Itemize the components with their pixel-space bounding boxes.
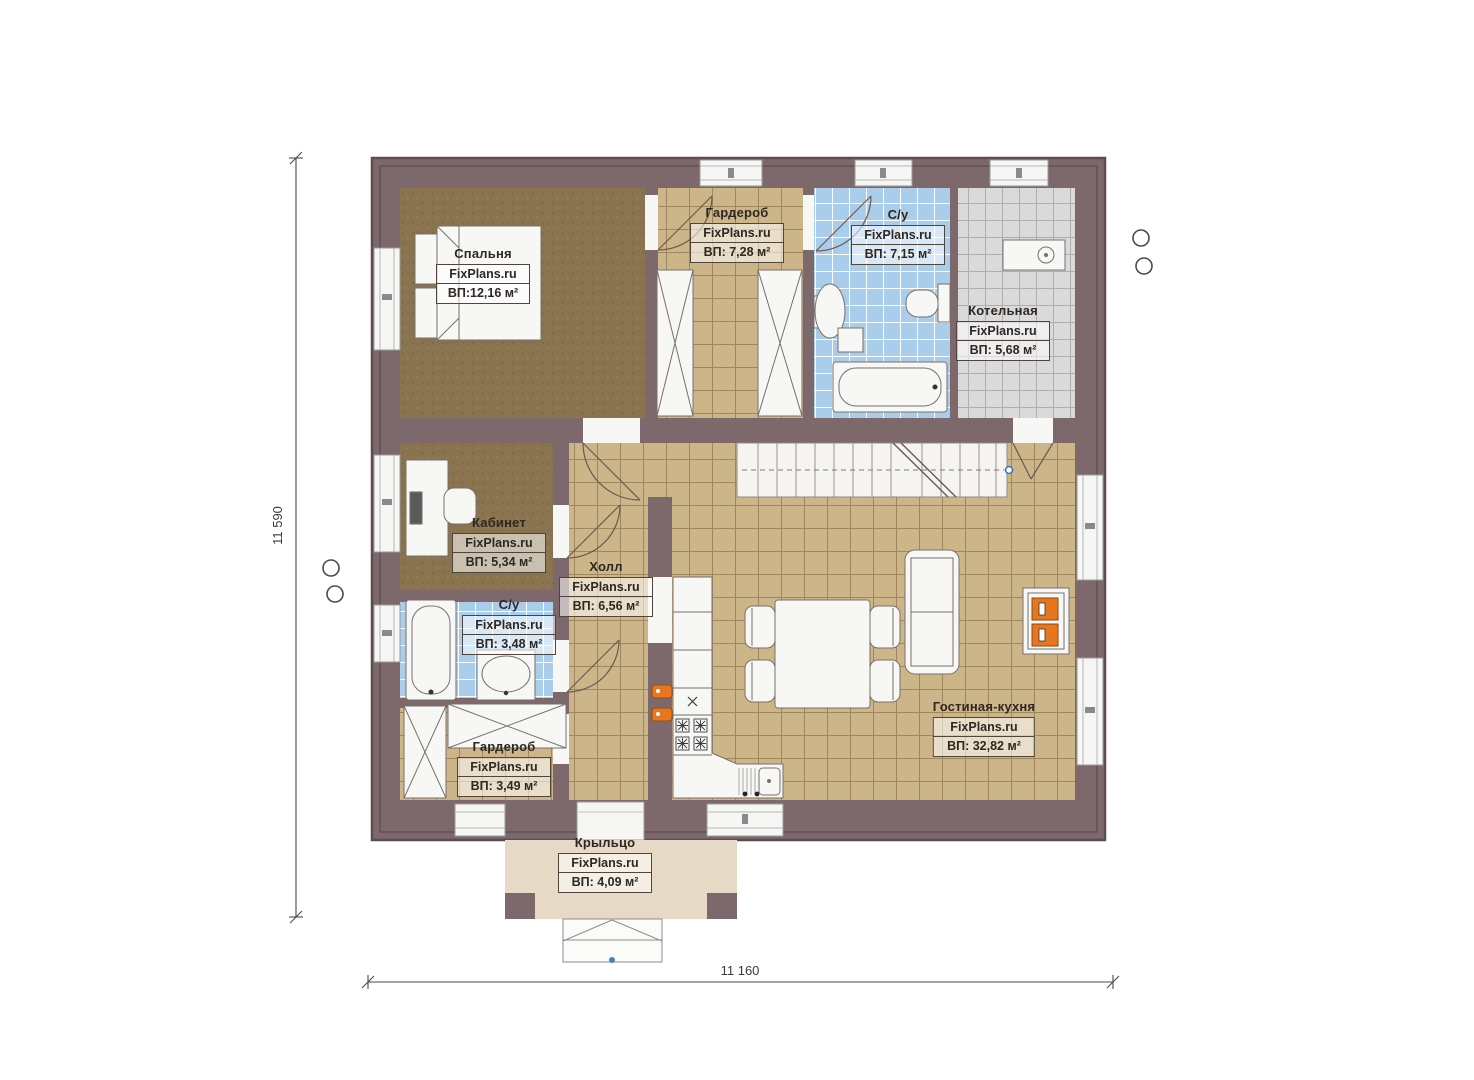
dining-chair xyxy=(870,660,900,702)
dining-table xyxy=(775,600,870,708)
vent-circle xyxy=(327,586,343,602)
room-label-bedroom: Спальня FixPlans.ru ВП:12,16 м² xyxy=(436,247,530,304)
room-watermark: FixPlans.ru xyxy=(457,757,551,777)
vent-circle xyxy=(1136,258,1152,274)
monitor xyxy=(410,492,422,524)
window xyxy=(1077,475,1103,580)
porch-steps xyxy=(563,919,662,963)
floor-plan-page: Спальня FixPlans.ru ВП:12,16 м² Гардероб… xyxy=(0,0,1474,1080)
room-name: Гардероб xyxy=(690,206,784,221)
room-watermark: FixPlans.ru xyxy=(559,577,653,597)
radiator xyxy=(652,685,672,698)
window xyxy=(855,160,912,186)
boiler-unit xyxy=(1003,240,1065,270)
room-label-bathroom-top: С/у FixPlans.ru ВП: 7,15 м² xyxy=(851,208,945,265)
room-label-hall: Холл FixPlans.ru ВП: 6,56 м² xyxy=(559,560,653,617)
room-name: Гостиная-кухня xyxy=(933,700,1035,715)
vent-circle xyxy=(323,560,339,576)
closet xyxy=(758,270,802,416)
dining-chair xyxy=(745,660,775,702)
room-area: ВП: 5,68 м² xyxy=(956,340,1050,360)
bathtub xyxy=(406,600,456,700)
dining-chair xyxy=(870,606,900,648)
room-area: ВП: 5,34 м² xyxy=(452,552,546,572)
window xyxy=(1077,658,1103,765)
room-label-boiler: Котельная FixPlans.ru ВП: 5,68 м² xyxy=(956,304,1050,361)
dimension-bottom-label: 11 160 xyxy=(721,963,760,978)
room-watermark: FixPlans.ru xyxy=(933,717,1035,737)
dimension-line-left xyxy=(289,152,303,923)
window xyxy=(374,455,400,552)
room-name: Спальня xyxy=(436,247,530,262)
room-area: ВП: 7,28 м² xyxy=(690,242,784,262)
closet xyxy=(657,270,693,416)
window xyxy=(707,804,783,836)
washbasin xyxy=(477,650,535,700)
dimension-left-label: 11 590 xyxy=(270,506,285,545)
window xyxy=(374,605,400,662)
room-watermark: FixPlans.ru xyxy=(956,321,1050,341)
room-area: ВП: 3,49 м² xyxy=(457,776,551,796)
room-name: Кабинет xyxy=(452,516,546,531)
room-label-bathroom-lower: С/у FixPlans.ru ВП: 3,48 м² xyxy=(462,598,556,655)
window xyxy=(700,160,762,186)
room-watermark: FixPlans.ru xyxy=(851,225,945,245)
window xyxy=(374,248,400,350)
room-watermark: FixPlans.ru xyxy=(462,615,556,635)
room-area: ВП:12,16 м² xyxy=(436,283,530,303)
room-area: ВП: 4,09 м² xyxy=(558,872,652,892)
room-area: ВП: 7,15 м² xyxy=(851,244,945,264)
bathtub xyxy=(833,362,947,412)
room-watermark: FixPlans.ru xyxy=(558,853,652,873)
closet xyxy=(404,706,446,798)
room-area: ВП: 3,48 м² xyxy=(462,634,556,654)
room-name: Холл xyxy=(559,560,653,575)
room-watermark: FixPlans.ru xyxy=(690,223,784,243)
floor-plan-drawing xyxy=(0,0,1474,1080)
porch-pillar xyxy=(505,893,535,919)
room-label-wardrobe-top: Гардероб FixPlans.ru ВП: 7,28 м² xyxy=(690,206,784,263)
dining-chair xyxy=(745,606,775,648)
room-watermark: FixPlans.ru xyxy=(452,533,546,553)
room-label-wardrobe-lower: Гардероб FixPlans.ru ВП: 3,49 м² xyxy=(457,740,551,797)
window xyxy=(990,160,1048,186)
room-name: С/у xyxy=(851,208,945,223)
hall-living-connector-floor xyxy=(648,443,672,497)
stairs xyxy=(737,443,1013,497)
stair-reference-point xyxy=(1006,467,1013,474)
room-area: ВП: 6,56 м² xyxy=(559,596,653,616)
bath-cabinet xyxy=(838,328,863,352)
radiator xyxy=(652,708,672,721)
room-label-office: Кабинет FixPlans.ru ВП: 5,34 м² xyxy=(452,516,546,573)
window xyxy=(455,804,505,836)
fireplace-stove xyxy=(1023,588,1069,654)
room-label-porch: Крыльцо FixPlans.ru ВП: 4,09 м² xyxy=(558,836,652,893)
room-name: Котельная xyxy=(956,304,1050,319)
room-label-living-kitchen: Гостиная-кухня FixPlans.ru ВП: 32,82 м² xyxy=(933,700,1035,757)
room-name: Гардероб xyxy=(457,740,551,755)
room-name: С/у xyxy=(462,598,556,613)
room-name: Крыльцо xyxy=(558,836,652,851)
vent-circle xyxy=(1133,230,1149,246)
room-area: ВП: 32,82 м² xyxy=(933,736,1035,756)
room-watermark: FixPlans.ru xyxy=(436,264,530,284)
porch-pillar xyxy=(707,893,737,919)
sofa xyxy=(905,550,959,674)
